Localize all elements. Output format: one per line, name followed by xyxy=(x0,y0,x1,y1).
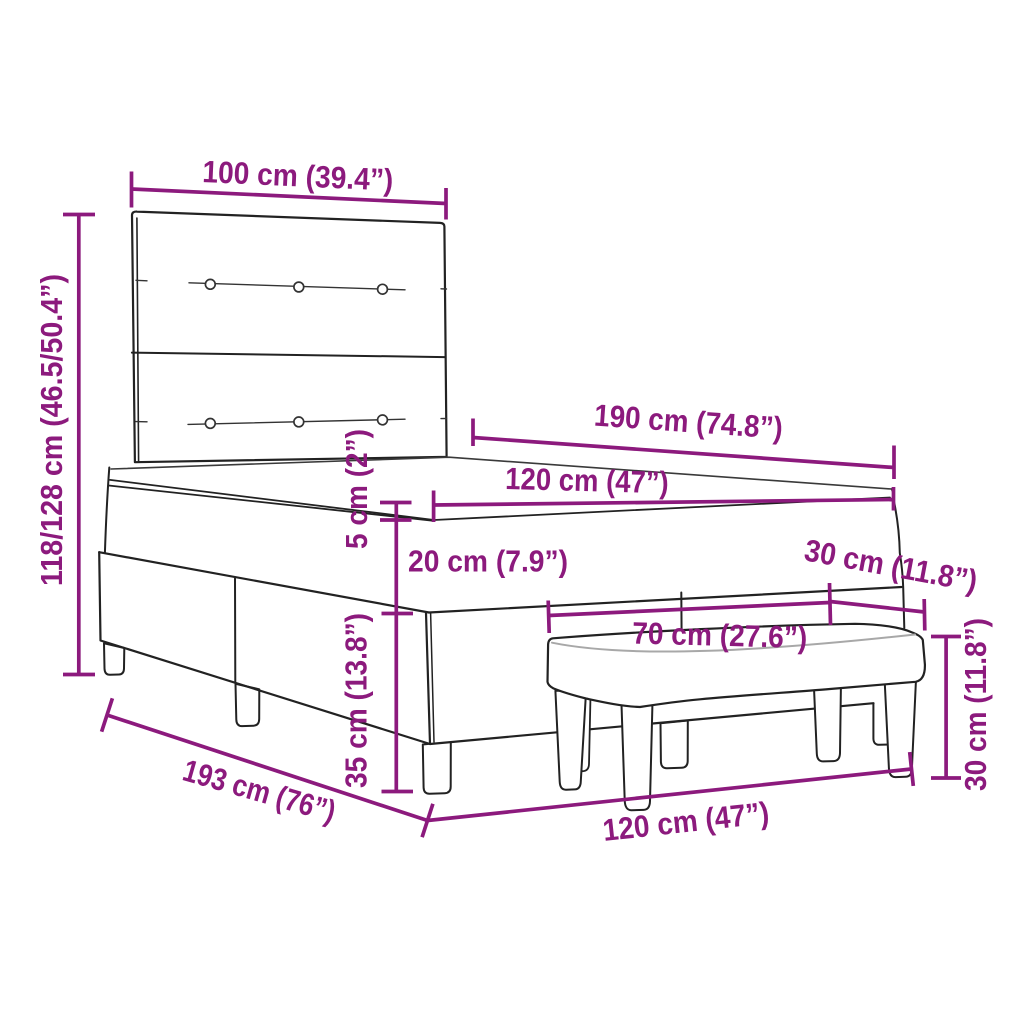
svg-text:120 cm (47”): 120 cm (47”) xyxy=(505,461,669,500)
svg-text:70 cm (27.6”): 70 cm (27.6”) xyxy=(632,616,808,656)
svg-text:20 cm (7.9”): 20 cm (7.9”) xyxy=(408,544,568,579)
svg-text:118/128 cm (46.5/50.4”): 118/128 cm (46.5/50.4”) xyxy=(34,274,69,586)
svg-text:30 cm (11.8”): 30 cm (11.8”) xyxy=(958,618,993,791)
svg-text:5 cm (2”): 5 cm (2”) xyxy=(339,429,374,549)
svg-text:35 cm (13.8”): 35 cm (13.8”) xyxy=(339,613,374,788)
